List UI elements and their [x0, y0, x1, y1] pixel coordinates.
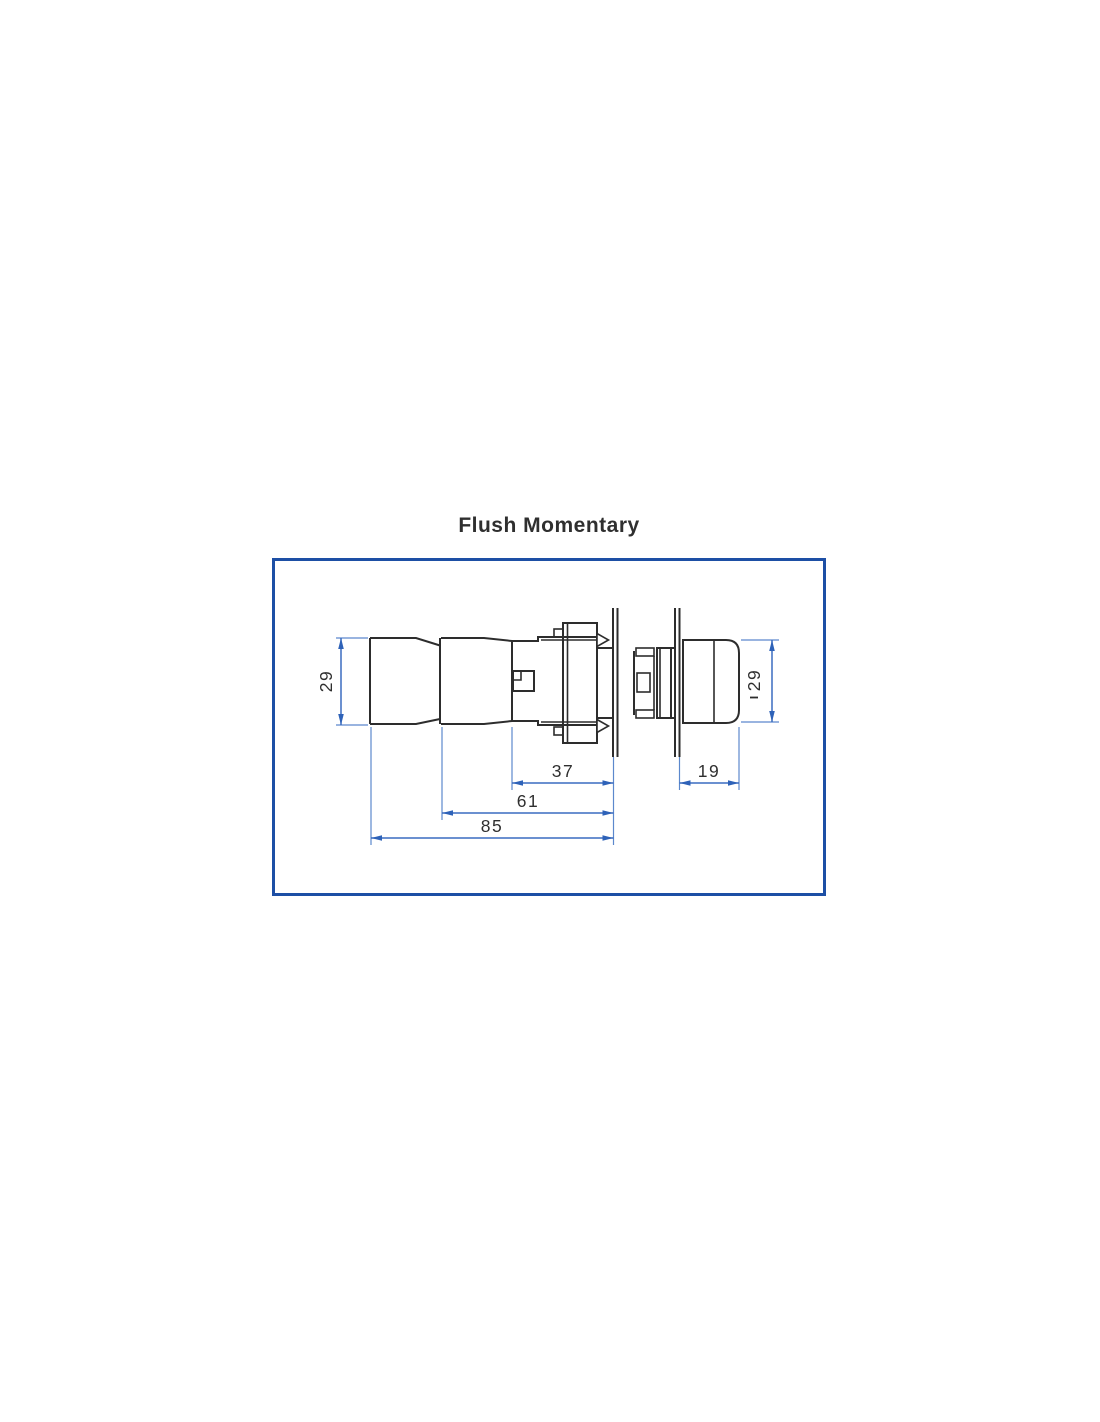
dim-head-projection: 19	[680, 761, 740, 786]
page: Flush Momentary	[0, 0, 1100, 1422]
dim-label-switch-unit-length: 61	[517, 791, 539, 811]
dim-label-behind-panel-length: 37	[552, 761, 574, 781]
panel-latch-arrow-bottom	[597, 720, 609, 733]
mounting-panel-right	[675, 608, 680, 757]
button-head	[683, 640, 739, 723]
operator-body	[512, 637, 597, 725]
dim-label-head-height: 29	[744, 669, 764, 691]
clip-window	[513, 671, 534, 691]
button-cap-section-1	[370, 638, 440, 724]
dimensions: 29 29 37	[316, 638, 779, 845]
latch-tab-top	[554, 629, 563, 637]
dim-label-head-projection: 19	[698, 761, 720, 781]
switch-side-view	[370, 608, 618, 757]
button-head-view	[634, 608, 739, 757]
dim-label-cap-height: 29	[316, 670, 336, 692]
dim-cap-height: 29	[316, 638, 368, 725]
panel-latch-arrow-top	[597, 634, 609, 647]
dim-behind-panel-length: 37	[512, 761, 614, 786]
dimension-drawing-svg: 29 29 37	[0, 0, 1100, 1422]
dim-switch-unit-length: 61	[442, 791, 614, 816]
button-cap-section-2	[441, 638, 512, 724]
dim-total-length: 85	[371, 816, 614, 841]
latch-tab-bottom	[554, 727, 563, 735]
dim-head-height: 29	[741, 640, 779, 722]
dim-label-total-length: 85	[481, 816, 503, 836]
bezel	[597, 648, 613, 718]
mounting-panel-left	[613, 608, 618, 757]
rear-adapter	[634, 648, 675, 718]
